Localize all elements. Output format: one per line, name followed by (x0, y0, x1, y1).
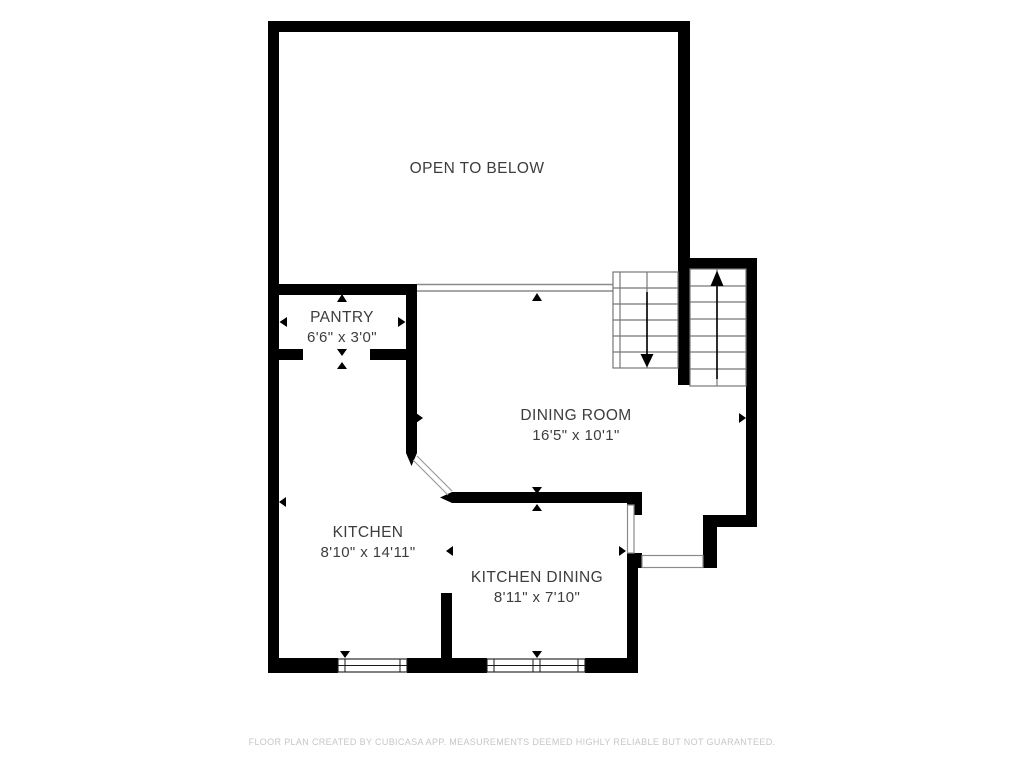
room-label-pantry: PANTRY 6'6" x 3'0" (307, 308, 377, 347)
room-name: DINING ROOM (520, 406, 631, 426)
wall-kitchen-divider (441, 593, 452, 663)
marker-left-kitchen-icon (279, 497, 286, 507)
wall-kitchen-dining-top (452, 492, 633, 503)
floor-plan-page: OPEN TO BELOW PANTRY 6'6" x 3'0" DINING … (0, 0, 1024, 768)
wall-tip-upper (406, 453, 417, 466)
room-name: PANTRY (307, 308, 377, 328)
marker-right-kd-wall-icon (619, 546, 626, 556)
marker-right-pantry-icon (398, 317, 406, 327)
wall-kitchen-right (406, 349, 417, 453)
stairs-down-flight (613, 272, 678, 368)
stairs-up-flight (690, 269, 746, 386)
marker-up-kd-top-icon (532, 504, 542, 511)
footer-disclaimer: FLOOR PLAN CREATED BY CUBICASA APP. MEAS… (249, 737, 776, 747)
wall-top (268, 21, 690, 32)
wall-stair-divider (678, 258, 690, 385)
wall-bottom-1 (268, 658, 338, 673)
room-label-kitchen: KITCHEN 8'10" x 14'11" (320, 523, 415, 562)
room-name: KITCHEN (320, 523, 415, 543)
floor-plan-drawing (0, 0, 1024, 768)
marker-left-pantry-icon (280, 317, 288, 327)
window-kitchen (338, 659, 407, 672)
marker-right-dining-left-icon (416, 413, 423, 423)
marker-left-kitchen-open-icon (446, 546, 453, 556)
marker-up-pantry-door-icon (337, 362, 347, 369)
room-dimensions: 16'5" x 10'1" (520, 426, 631, 445)
wall-open-below-right (678, 21, 690, 268)
wall-pantry-bottom-left (268, 349, 303, 360)
room-label-kitchen-dining: KITCHEN DINING 8'11" x 7'10" (471, 568, 603, 607)
room-dimensions: 6'6" x 3'0" (307, 328, 377, 347)
wall-left (268, 21, 279, 673)
marker-up-pantry-top-icon (337, 294, 347, 302)
marker-right-dining-right-icon (739, 413, 746, 423)
wall-bottom-3 (585, 658, 638, 673)
marker-up-railing-icon (532, 293, 542, 301)
marker-down-kitchen-window-icon (340, 651, 350, 658)
room-label-dining-room: DINING ROOM 16'5" x 10'1" (520, 406, 631, 445)
diagonal-opening (413, 456, 452, 495)
wall-pantry-right (406, 284, 417, 360)
window-right-vertical (628, 505, 635, 553)
marker-down-pantry-door-icon (337, 349, 347, 356)
room-name: KITCHEN DINING (471, 568, 603, 588)
marker-down-kd-window-icon (532, 651, 542, 658)
wall-pantry-top (268, 284, 417, 295)
wall-dining-right (746, 258, 757, 527)
window-kitchen-dining (487, 659, 585, 672)
room-dimensions: 8'10" x 14'11" (320, 543, 415, 562)
wall-kitchen-dining-right (627, 553, 638, 673)
room-dimensions: 8'11" x 7'10" (471, 588, 603, 607)
open-to-below-label: OPEN TO BELOW (410, 160, 545, 178)
window-right-horizontal (642, 556, 703, 568)
